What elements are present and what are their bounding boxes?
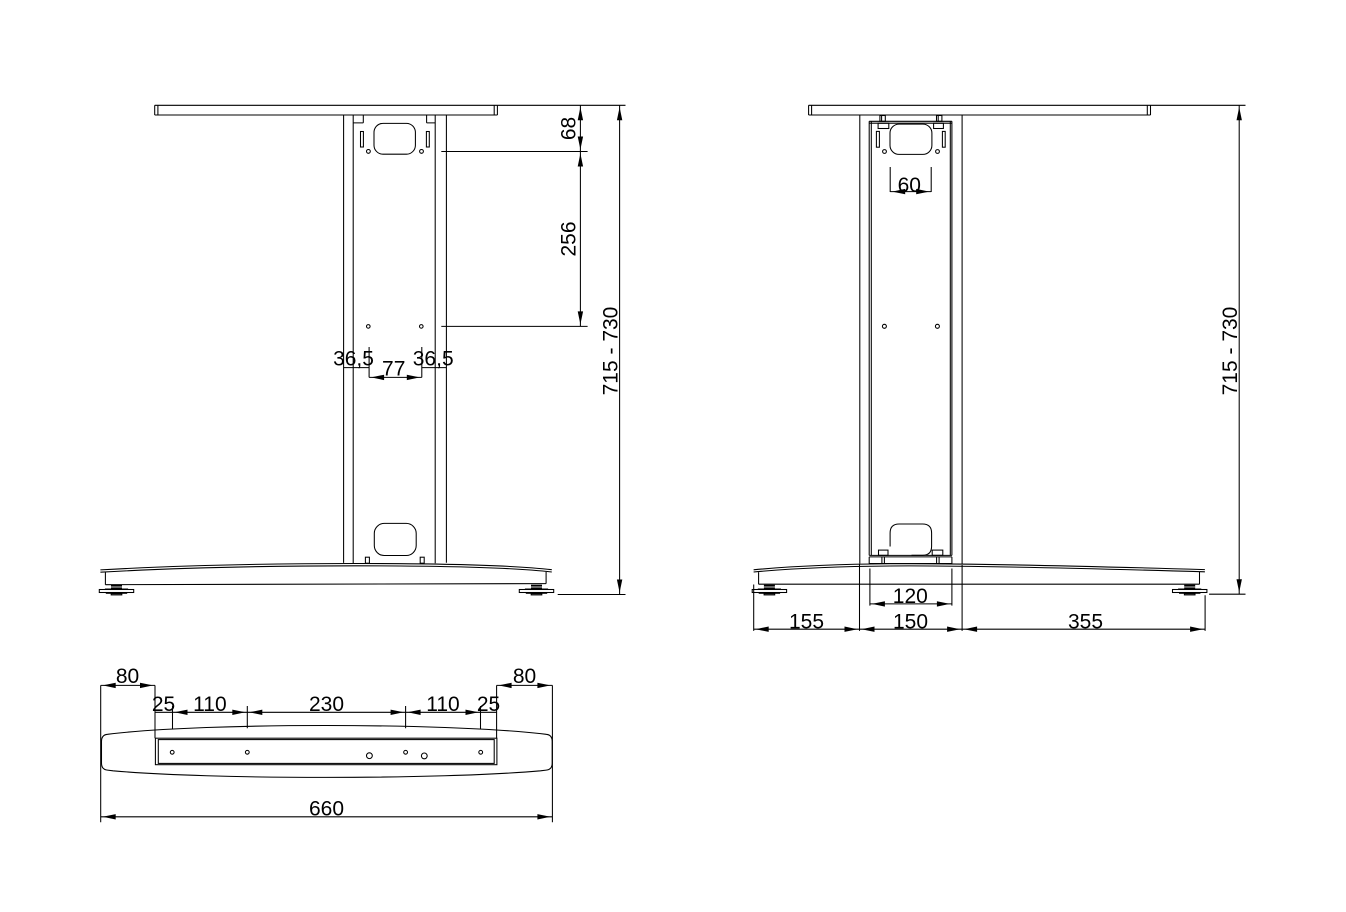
svg-text:110: 110 [193,693,226,716]
svg-text:355: 355 [1068,610,1103,633]
svg-text:36,5: 36,5 [333,348,374,371]
svg-text:256: 256 [557,221,580,256]
svg-text:68: 68 [557,117,580,140]
svg-text:150: 150 [893,610,928,633]
svg-text:25: 25 [152,693,175,716]
svg-text:155: 155 [789,610,824,633]
svg-text:230: 230 [309,693,344,716]
svg-text:80: 80 [116,665,139,688]
svg-text:80: 80 [513,665,536,688]
svg-text:660: 660 [309,798,344,821]
svg-text:60: 60 [898,174,921,197]
svg-text:120: 120 [893,585,928,608]
svg-text:715 - 730: 715 - 730 [600,307,623,396]
svg-text:25: 25 [477,693,500,716]
svg-text:715 - 730: 715 - 730 [1219,307,1242,396]
svg-text:77: 77 [382,357,405,380]
svg-text:36,5: 36,5 [413,348,454,371]
svg-text:110: 110 [426,693,459,716]
